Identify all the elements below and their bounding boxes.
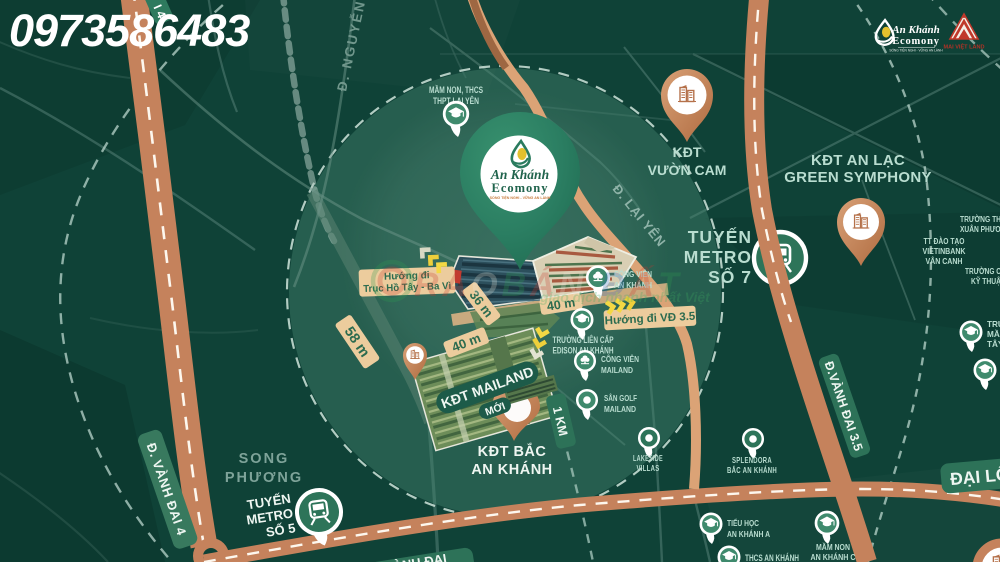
svg-text:TRƯỜNG C: TRƯỜNG C xyxy=(965,265,1000,276)
svg-text:MẦM NON: MẦM NON xyxy=(816,542,850,552)
svg-text:KĐT BẮC: KĐT BẮC xyxy=(478,442,547,460)
svg-text:PHƯƠNG: PHƯƠNG xyxy=(225,470,303,486)
svg-text:MAILAND: MAILAND xyxy=(604,404,636,414)
svg-text:LAKESIDE: LAKESIDE xyxy=(633,454,663,463)
svg-text:SỐNG TIỆN NGHI - VỮNG AN LÀNH: SỐNG TIỆN NGHI - VỮNG AN LÀNH xyxy=(889,48,943,53)
svg-text:SPLENDORA: SPLENDORA xyxy=(732,456,772,465)
svg-text:KỸ THUẬ: KỸ THUẬ xyxy=(971,275,1000,286)
svg-text:AN KHÁNH C: AN KHÁNH C xyxy=(811,552,856,562)
svg-text:VILLAS: VILLAS xyxy=(637,464,660,473)
svg-text:VÂN CANH: VÂN CANH xyxy=(926,255,963,266)
svg-text:MAI VIỆT LAND: MAI VIỆT LAND xyxy=(944,43,985,51)
svg-text:An Khánh: An Khánh xyxy=(891,24,939,36)
svg-text:VƯỜN CAM: VƯỜN CAM xyxy=(648,161,727,178)
svg-text:SÂN GOLF: SÂN GOLF xyxy=(604,392,637,403)
svg-text:AN KHÁNH: AN KHÁNH xyxy=(471,461,552,478)
svg-text:SỐNG TIỆN NGHI - VỮNG AN LÀNH: SỐNG TIỆN NGHI - VỮNG AN LÀNH xyxy=(490,195,551,200)
svg-text:An Khánh: An Khánh xyxy=(490,167,549,182)
svg-text:BẮC AN KHÁNH: BẮC AN KHÁNH xyxy=(727,465,777,475)
svg-text:TT ĐÀO TẠO: TT ĐÀO TẠO xyxy=(924,236,965,246)
svg-text:TÂY: TÂY xyxy=(987,338,1000,349)
svg-text:CÔNG VIÊN: CÔNG VIÊN xyxy=(601,353,639,364)
svg-text:0973586483: 0973586483 xyxy=(9,5,250,56)
svg-text:Ecomony: Ecomony xyxy=(892,36,940,47)
svg-text:giao dịch nhanh nhất Việt: giao dịch nhanh nhất Việt xyxy=(539,289,711,305)
svg-text:TRƯỜNG LIÊN CẤP: TRƯỜNG LIÊN CẤP xyxy=(553,334,614,345)
svg-text:TRƯỜNG TH: TRƯỜNG TH xyxy=(960,213,1000,224)
svg-text:MẦM NON, THCS: MẦM NON, THCS xyxy=(429,85,483,96)
svg-text:THCS AN KHÁNH: THCS AN KHÁNH xyxy=(745,553,799,562)
svg-text:XUÂN PHƯƠ: XUÂN PHƯƠ xyxy=(960,223,1000,234)
svg-text:TRƯ: TRƯ xyxy=(987,320,1000,329)
svg-text:TIỂU HỌC: TIỂU HỌC xyxy=(727,517,759,528)
svg-text:VIETINBANK: VIETINBANK xyxy=(923,246,967,256)
svg-text:KĐT AN LẠC: KĐT AN LẠC xyxy=(811,152,905,169)
svg-text:MẦM: MẦM xyxy=(987,329,1000,339)
svg-text:SỐ 7: SỐ 7 xyxy=(708,266,752,287)
svg-text:TUYẾN: TUYẾN xyxy=(688,226,752,247)
svg-text:KĐT: KĐT xyxy=(673,144,702,160)
svg-text:AN KHÁNH A: AN KHÁNH A xyxy=(727,529,770,539)
svg-text:METRO: METRO xyxy=(684,247,752,267)
svg-text:GREEN SYMPHONY: GREEN SYMPHONY xyxy=(784,169,932,186)
svg-text:MAILAND: MAILAND xyxy=(601,365,633,375)
svg-text:Ecomony: Ecomony xyxy=(492,181,549,195)
svg-text:SONG: SONG xyxy=(239,451,290,467)
